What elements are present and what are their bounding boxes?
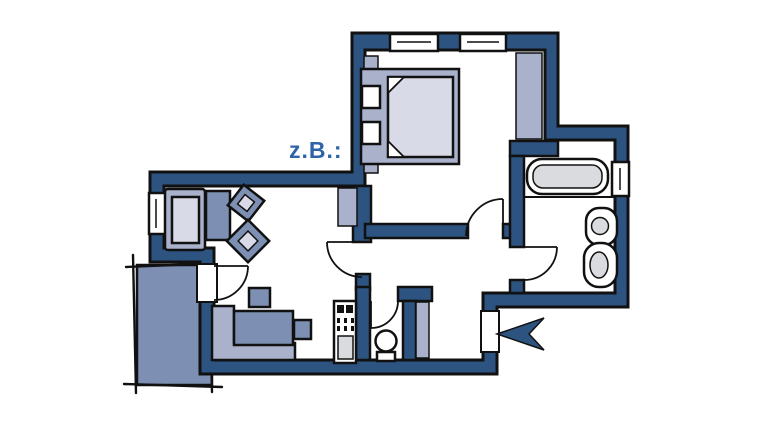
caption-label: z.B.: bbox=[289, 137, 343, 163]
hall-radiator bbox=[416, 302, 429, 358]
toilet-bowl bbox=[590, 252, 608, 278]
wall-bathroom-left-lower bbox=[510, 280, 524, 293]
floorplan-canvas: z.B.: bbox=[0, 0, 768, 432]
wall-wc-left bbox=[356, 287, 370, 360]
wall-bathroom-top bbox=[510, 141, 558, 156]
stool bbox=[294, 320, 311, 339]
wall-wc-top bbox=[398, 287, 432, 301]
oven-door bbox=[338, 336, 353, 359]
dining-table bbox=[234, 311, 293, 345]
sideboard bbox=[206, 191, 230, 240]
wc-toilet bbox=[376, 331, 397, 352]
balcony-door-opening bbox=[197, 264, 217, 302]
wc bbox=[376, 331, 397, 362]
floorplan-drawing: z.B.: bbox=[0, 0, 768, 432]
living-room-cupboard bbox=[338, 188, 357, 226]
stove-burner bbox=[346, 305, 353, 313]
sink-basin bbox=[592, 218, 609, 235]
living-room-window bbox=[149, 193, 166, 234]
wall-bathroom-left-upper bbox=[510, 156, 524, 247]
wall-bedroom-hall bbox=[365, 224, 468, 238]
nightstand bbox=[362, 86, 380, 108]
entrance-arrow-icon bbox=[497, 318, 544, 350]
armchair-cushion bbox=[172, 197, 199, 243]
kitchen bbox=[334, 301, 356, 363]
entrance-door-opening bbox=[481, 311, 499, 352]
stool bbox=[249, 288, 270, 307]
wall-wc-right bbox=[403, 301, 416, 360]
bedroom-wardrobe bbox=[516, 53, 542, 139]
double-bed-mattress bbox=[388, 77, 453, 157]
bathtub-basin bbox=[533, 165, 602, 188]
nightstand bbox=[362, 122, 380, 144]
stove-burner bbox=[337, 305, 344, 313]
wc-toilet-tank bbox=[377, 352, 395, 361]
bedroom bbox=[361, 69, 459, 164]
balcony-sketch-line bbox=[133, 255, 136, 393]
